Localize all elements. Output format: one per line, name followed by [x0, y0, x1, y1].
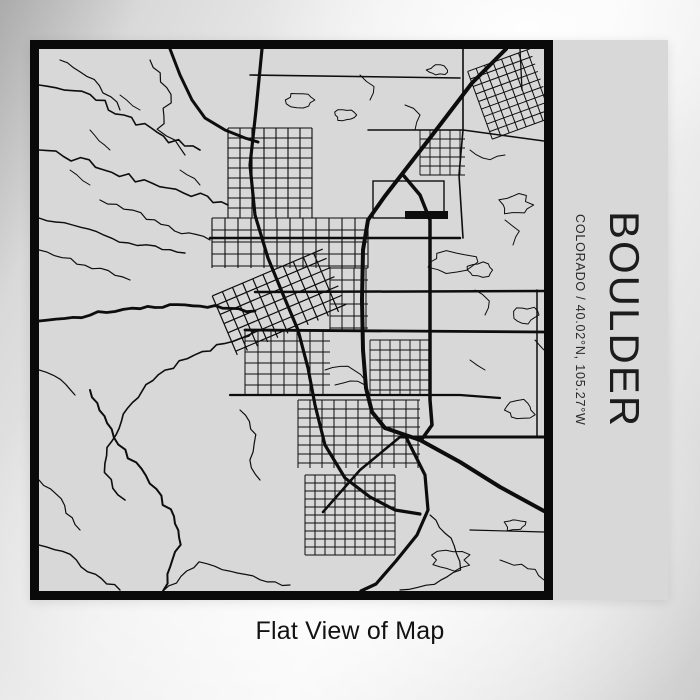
map-title: BOULDER — [600, 211, 648, 428]
map-label-panel: COLORADO / 40.02°N, 105.27°W BOULDER — [553, 40, 668, 600]
map-svg — [39, 49, 544, 591]
product-scene: COLORADO / 40.02°N, 105.27°W BOULDER Fla… — [0, 0, 700, 700]
map-subtitle: COLORADO / 40.02°N, 105.27°W — [573, 214, 587, 426]
map-frame — [30, 40, 553, 600]
map-print: COLORADO / 40.02°N, 105.27°W BOULDER — [30, 40, 668, 600]
view-caption: Flat View of Map — [0, 617, 700, 646]
